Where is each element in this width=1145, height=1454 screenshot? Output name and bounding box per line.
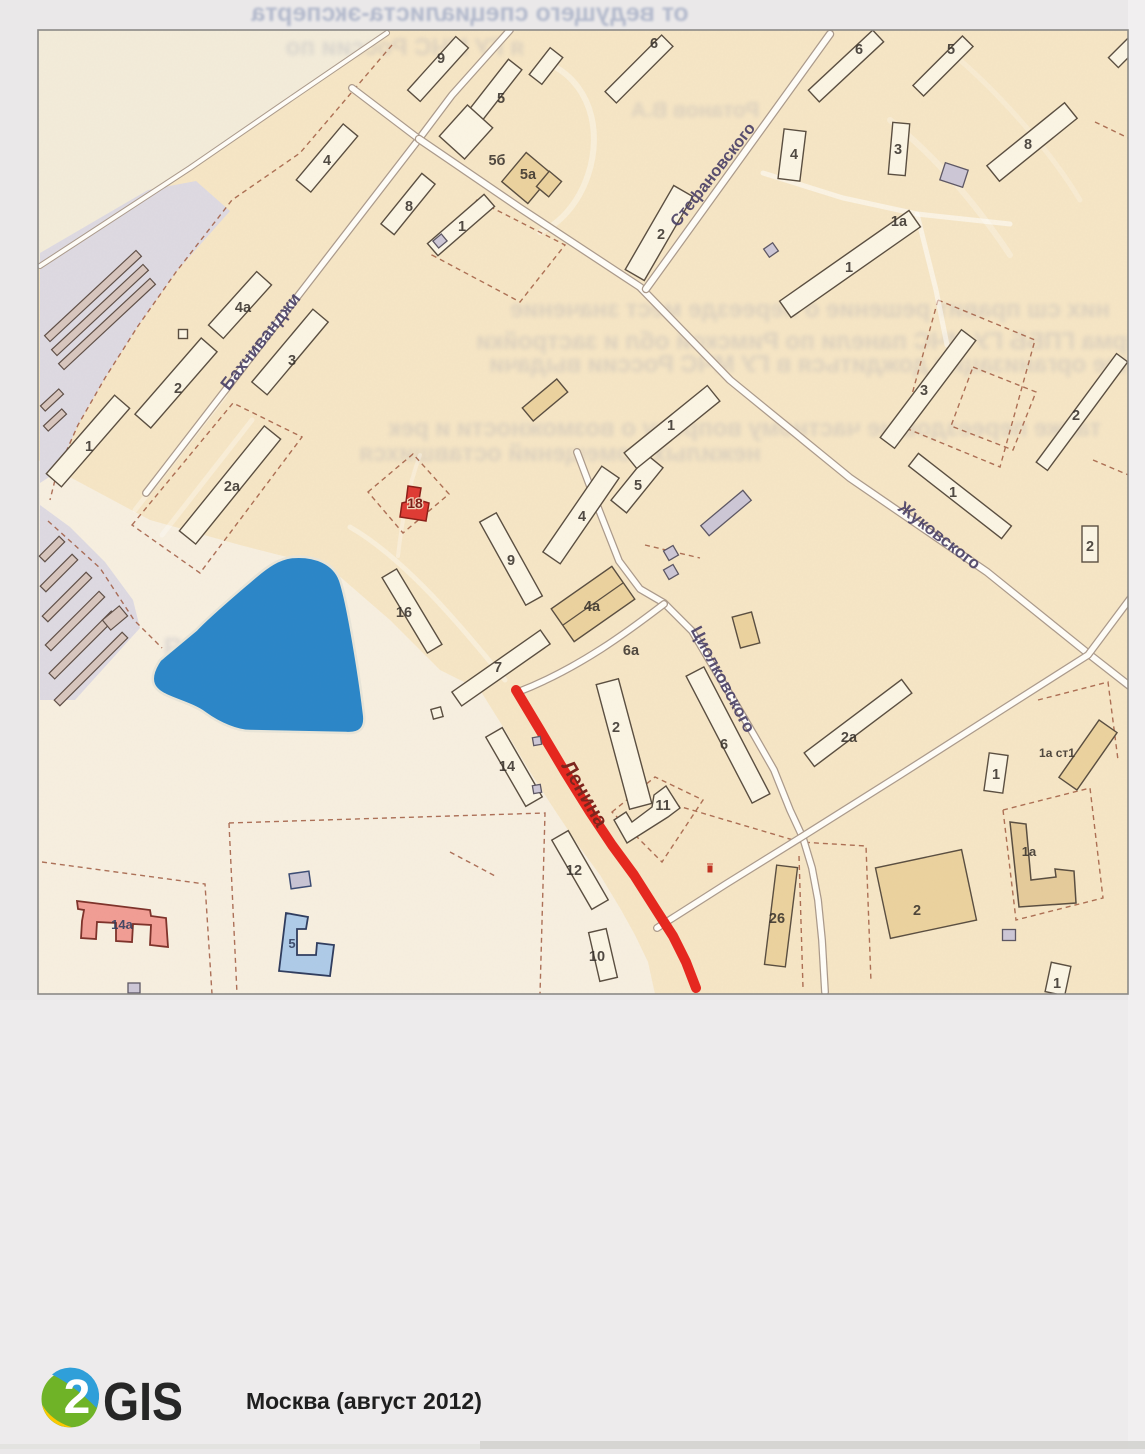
svg-text:2: 2 xyxy=(64,1371,91,1424)
svg-text:Москва (август 2012): Москва (август 2012) xyxy=(246,1388,482,1414)
svg-text:от ведущего специалиста-экспер: от ведущего специалиста-эксперта xyxy=(250,0,688,27)
svg-text:GIS: GIS xyxy=(103,1372,183,1432)
